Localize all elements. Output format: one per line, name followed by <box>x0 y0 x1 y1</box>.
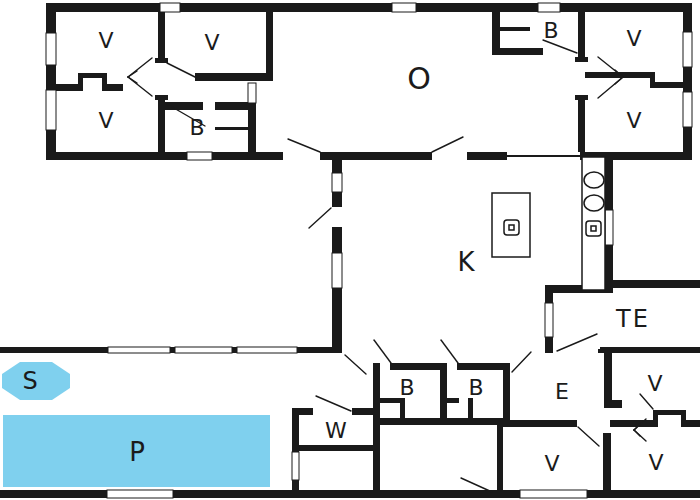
door-swing <box>578 427 599 446</box>
wall <box>575 95 588 100</box>
door-swing <box>441 340 458 363</box>
door-swing <box>288 139 320 152</box>
wall <box>597 280 700 288</box>
wall <box>46 3 56 160</box>
door-swing <box>557 334 597 351</box>
wall <box>297 347 332 353</box>
window <box>520 490 587 498</box>
sink-icon <box>584 195 604 211</box>
wall <box>681 420 700 427</box>
wall <box>653 410 686 415</box>
room-label-bedroom-s-center: V <box>544 451 559 476</box>
wall <box>78 73 107 78</box>
wall <box>46 152 283 160</box>
floorplan: V V V B O B V V K TE B B E W V V V S P <box>0 0 700 500</box>
door-swing <box>640 394 653 409</box>
window <box>332 173 342 192</box>
wall <box>575 57 588 62</box>
wall <box>545 337 553 353</box>
window <box>605 210 613 245</box>
wall <box>266 3 273 81</box>
wall <box>292 480 299 498</box>
wall <box>578 95 585 152</box>
window <box>46 33 56 65</box>
room-label-bedroom-se-top: V <box>647 371 662 396</box>
counter-edge <box>493 155 582 157</box>
room-label-bath-ne: B <box>543 18 558 43</box>
room-label-utility: W <box>325 418 347 443</box>
door-swing <box>615 77 623 84</box>
wall <box>605 152 613 210</box>
window <box>107 490 173 498</box>
room-label-bath-s2: B <box>468 375 483 400</box>
window <box>187 152 212 160</box>
wall <box>578 12 585 62</box>
wall <box>492 12 500 52</box>
wall <box>155 95 168 100</box>
wall <box>332 227 342 253</box>
wall <box>612 400 622 408</box>
room-label-bedroom-e: V <box>626 108 641 133</box>
cooktop-icon <box>591 226 596 231</box>
wall <box>440 363 447 425</box>
wall <box>158 95 165 152</box>
window <box>292 452 299 480</box>
wall <box>650 82 683 88</box>
wall <box>497 425 503 498</box>
wall <box>457 363 510 370</box>
floorplan-canvas: V V V B O B V V K TE B B E W V V V S P <box>0 0 700 500</box>
kitchen-fixtures <box>492 157 605 290</box>
room-label-living: O <box>407 61 431 96</box>
room-label-bedroom-se-bottom: V <box>648 450 663 475</box>
window <box>683 92 692 127</box>
wall <box>248 102 256 152</box>
wall <box>195 73 273 81</box>
wall <box>390 363 443 370</box>
outdoor-features <box>2 362 270 487</box>
window <box>108 347 170 353</box>
window <box>237 347 297 353</box>
door-leaf <box>248 83 256 103</box>
wall <box>332 152 342 173</box>
wall <box>373 363 380 425</box>
door-swing <box>128 71 137 77</box>
room-label-bedroom-sw: V <box>98 108 113 133</box>
window <box>160 3 180 12</box>
window <box>538 3 560 12</box>
room-label-entry: E <box>555 379 569 404</box>
wall <box>332 288 342 353</box>
sink-icon <box>584 172 604 188</box>
door-swing <box>461 478 492 492</box>
wall <box>373 425 380 498</box>
window <box>392 3 416 12</box>
wall <box>232 347 237 353</box>
wall <box>292 408 313 415</box>
room-label-bedroom-nw: V <box>98 28 113 53</box>
room-label-bedroom-ne: V <box>626 26 641 51</box>
wall <box>545 293 553 303</box>
door-swing <box>512 352 531 372</box>
wall <box>610 420 655 427</box>
shelf <box>500 27 530 31</box>
door-swing <box>309 208 331 228</box>
room-label-kitchen: K <box>457 247 475 277</box>
wall <box>373 418 510 425</box>
wall <box>598 349 616 353</box>
wall <box>503 363 510 425</box>
shower-partition <box>447 398 459 403</box>
shelf <box>215 127 248 130</box>
door-swing <box>167 63 197 78</box>
wall <box>683 3 692 158</box>
room-label-terrace: TE <box>615 305 650 333</box>
wall <box>215 102 250 110</box>
window <box>683 32 692 67</box>
door-swing <box>345 355 366 374</box>
wall <box>604 353 612 408</box>
room-label-bath-s1: B <box>399 375 414 400</box>
wall <box>292 445 377 451</box>
wall <box>332 192 342 207</box>
window <box>332 253 342 288</box>
wall <box>492 48 543 55</box>
wall <box>46 3 692 12</box>
wall <box>0 347 108 353</box>
room-label-pool: P <box>129 437 145 467</box>
room-label-bath-west: B <box>189 115 204 140</box>
cooktop-icon <box>509 225 514 230</box>
window <box>175 347 232 353</box>
wall <box>0 490 700 498</box>
window <box>545 303 553 337</box>
shower-partition <box>400 398 405 420</box>
wall <box>170 347 175 353</box>
door-swing <box>128 77 137 83</box>
door-swing <box>432 137 463 152</box>
wall <box>158 12 165 63</box>
wall <box>603 433 611 498</box>
door-swing <box>374 340 391 363</box>
door-swing <box>634 430 640 436</box>
wall <box>155 58 168 63</box>
window <box>46 90 56 130</box>
wall <box>500 420 577 427</box>
shower-partition <box>468 398 473 420</box>
door-swing <box>316 396 351 411</box>
room-label-bedroom-n: V <box>204 30 219 55</box>
room-label-spa: S <box>22 367 39 395</box>
